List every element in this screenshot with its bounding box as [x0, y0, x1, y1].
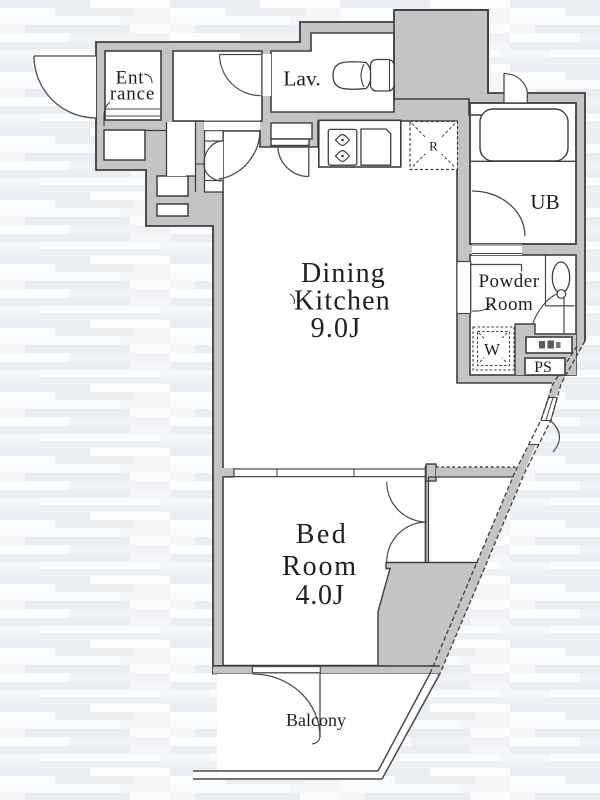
svg-text:W: W — [484, 340, 501, 359]
svg-text:PS: PS — [534, 359, 552, 376]
svg-text:Room: Room — [485, 294, 533, 315]
svg-text:Kitchen: Kitchen — [294, 286, 391, 317]
svg-text:9.0J: 9.0J — [311, 313, 362, 344]
svg-text:Room: Room — [282, 551, 358, 582]
svg-text:Bed: Bed — [296, 519, 349, 550]
svg-text:4.0J: 4.0J — [295, 580, 344, 611]
svg-text:UB: UB — [530, 190, 559, 214]
svg-text:R: R — [429, 139, 438, 154]
svg-text:Powder: Powder — [478, 271, 539, 292]
svg-text:Lav.: Lav. — [283, 67, 320, 91]
svg-text:Dining: Dining — [301, 258, 386, 289]
svg-text:Balcony: Balcony — [286, 710, 346, 730]
svg-text:rance: rance — [110, 84, 155, 105]
